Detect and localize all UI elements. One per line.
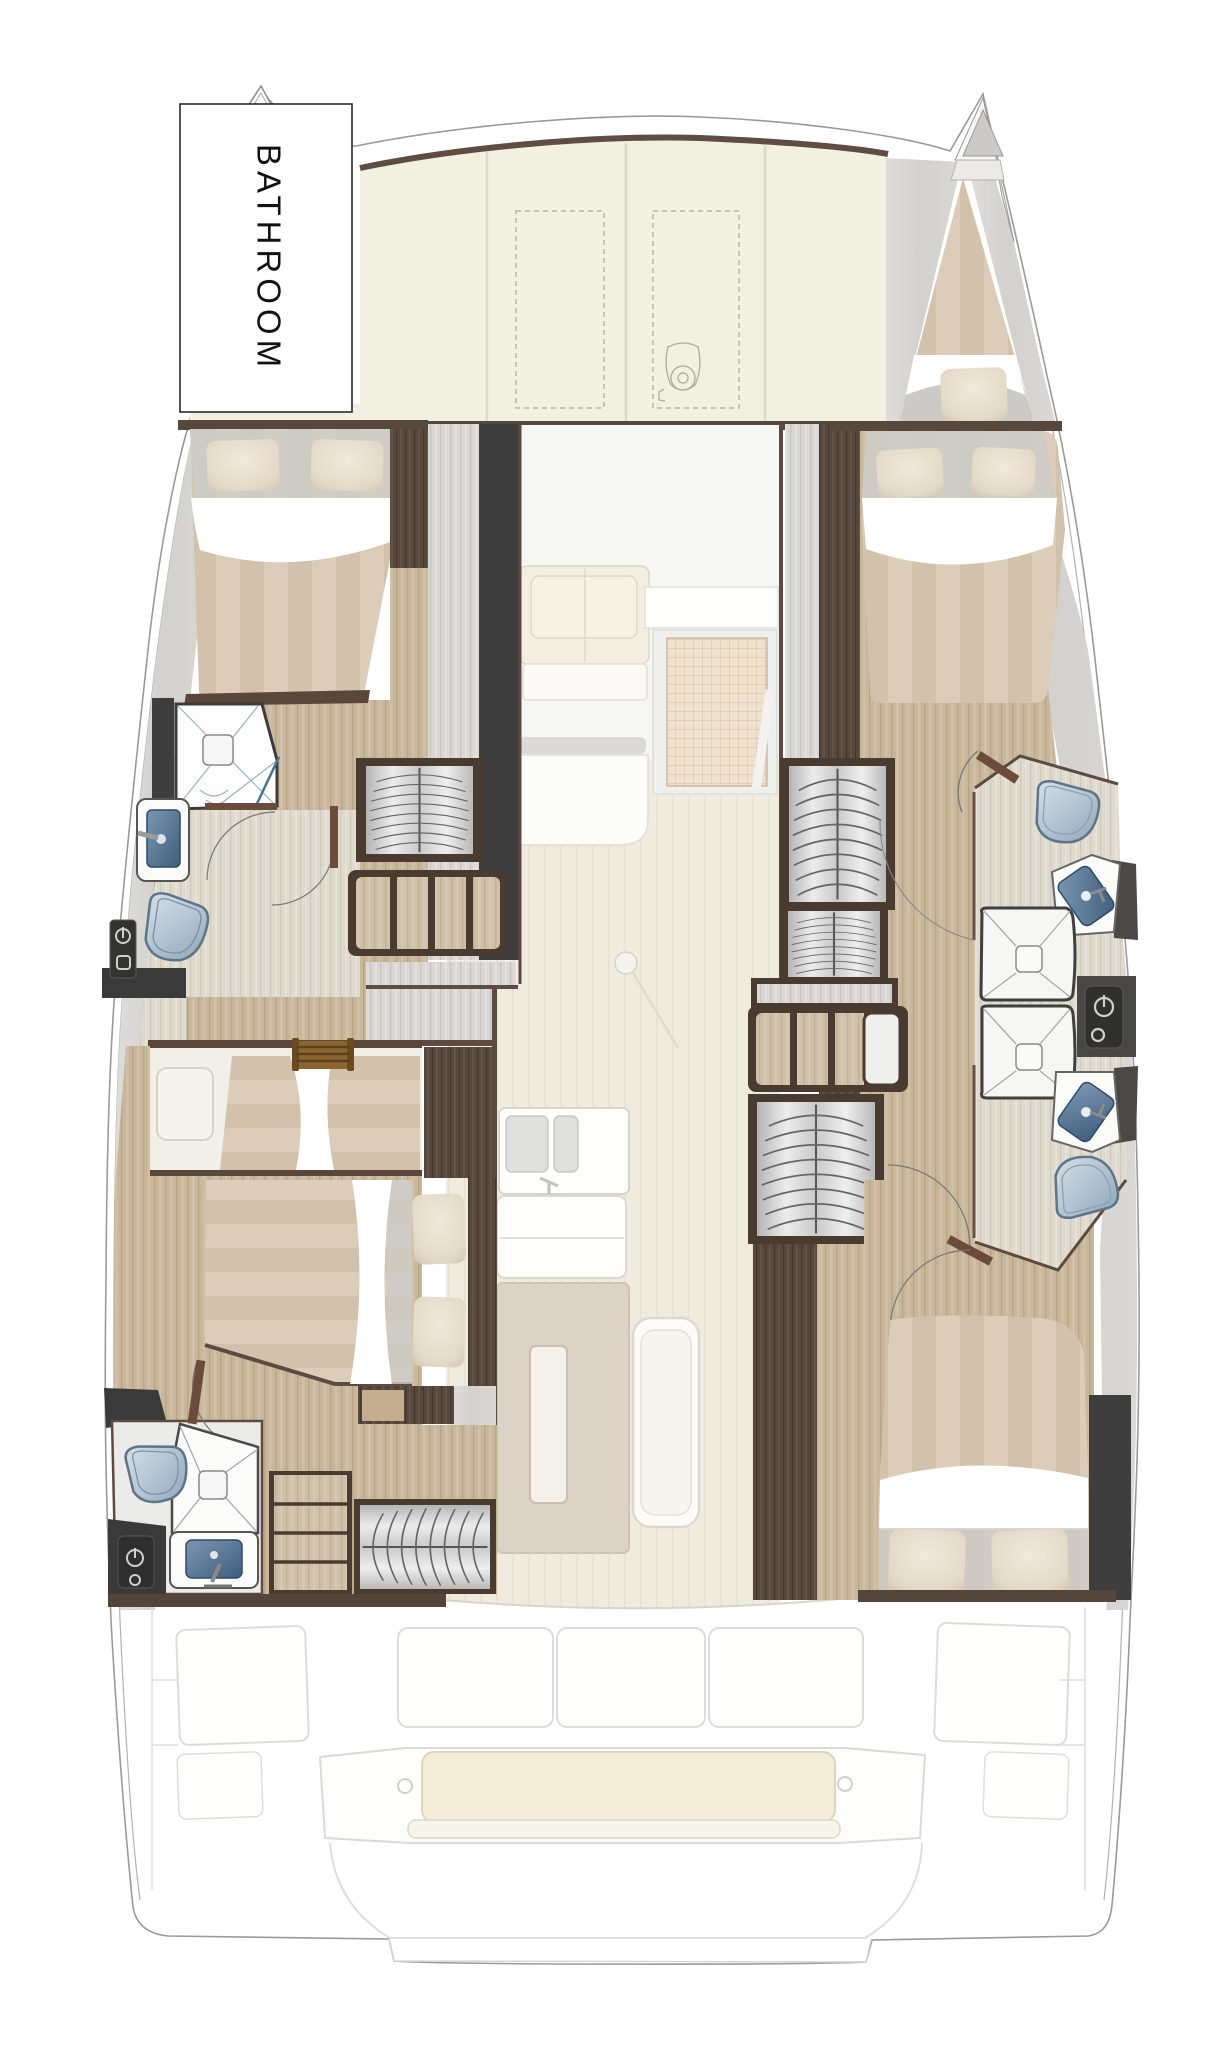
svg-text:BATHROOM: BATHROOM <box>250 144 287 372</box>
